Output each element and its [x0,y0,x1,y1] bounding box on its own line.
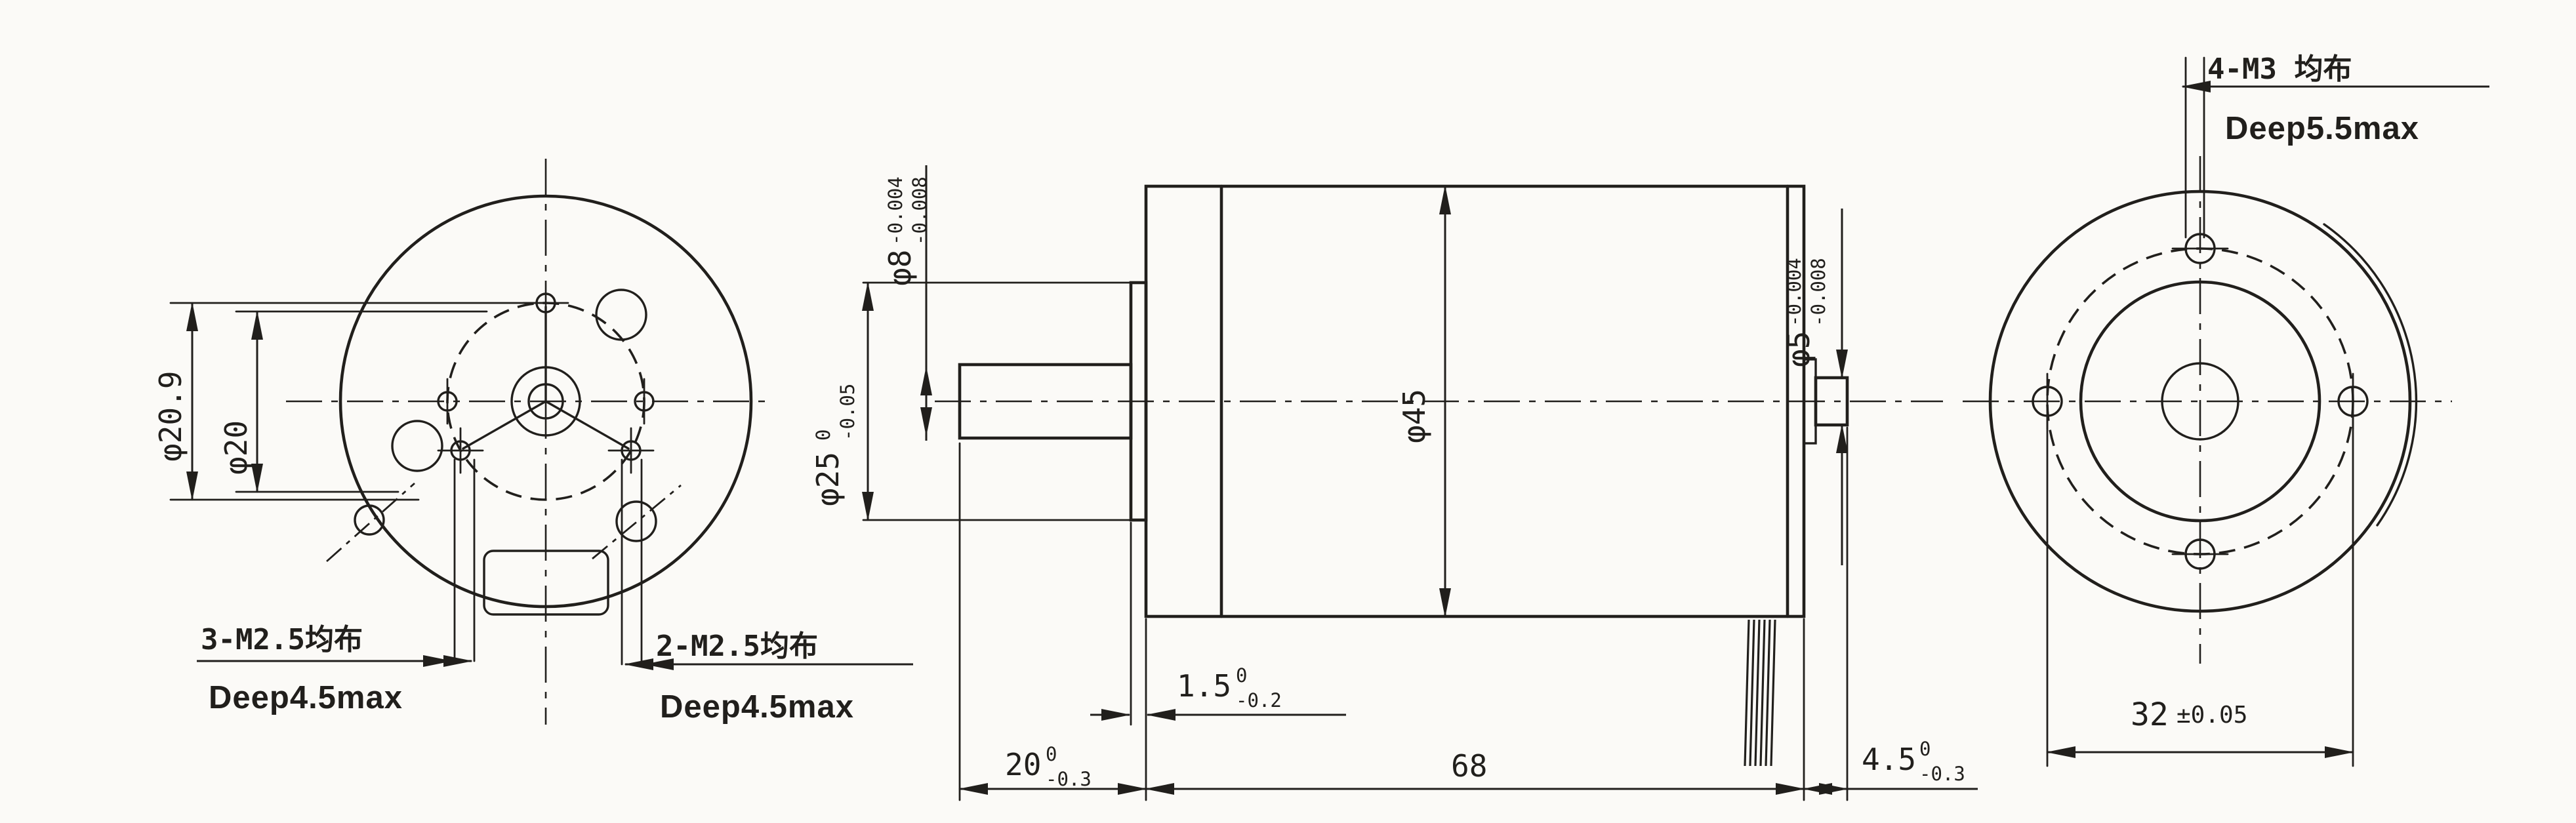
dim-rear-shaft-length: 4.5 0 -0.3 [1804,428,1978,800]
dim-pilot-boss-label: φ25 [810,452,846,506]
dim-front-shaft-tol-lower: -0.008 [909,176,931,245]
side-view: φ8 -0.004 -0.008 φ25 0 -0.05 φ45 [810,165,1978,800]
note-4xm3: 4-M3 均布 Deep5.5max [2182,52,2489,237]
dim-rear-shaft-length-tol-upper: 0 [1919,738,1931,760]
note-2xm25-spec: 2-M2.5均布 [656,630,818,663]
dim-pilot-boss-tol-upper: 0 [812,430,834,441]
note-4xm3-depth: Deep5.5max [2225,111,2419,146]
dim-pilot-boss-tol-lower: -0.05 [836,384,859,441]
hole-leader-lines [455,460,642,664]
dim-boss-lip-label: 1.5 [1177,668,1231,704]
dim-outer-bolt-circle-label: φ20.9 [153,371,188,462]
dim-rear-shaft-tol-upper: -0.004 [1783,258,1805,327]
note-3xm25-depth: Deep4.5max [209,680,403,715]
dim-front-shaft-length-tol-lower: -0.3 [1046,768,1092,790]
right-view: 4-M3 均布 Deep5.5max 32 ±0.05 [1963,52,2489,766]
note-2xm25-depth: Deep4.5max [660,689,854,725]
motor-dimension-drawing: φ20.9 φ20 3-M2.5均布 Deep4.5max 2-M2.5均布 D… [0,0,2576,823]
dim-rear-shaft: φ5 -0.004 -0.008 [1781,209,1842,565]
dim-boss-lip-tol-lower: -0.2 [1236,689,1282,712]
dim-front-shaft-label: φ8 [882,250,918,286]
note-3xm25-spec: 3-M2.5均布 [201,623,363,656]
note-4xm3-spec: 4-M3 均布 [2207,52,2352,86]
drawing-sheet: φ20.9 φ20 3-M2.5均布 Deep4.5max 2-M2.5均布 D… [0,0,2576,823]
housing-holes [392,290,656,541]
dim-rear-shaft-tol-lower: -0.008 [1807,258,1830,327]
dim-rear-shaft-length-tol-lower: -0.3 [1919,763,1965,785]
dim-front-shaft-length-tol-upper: 0 [1046,743,1057,765]
note-3xm25: 3-M2.5均布 Deep4.5max [197,623,472,715]
dim-front-shaft-tol-upper: -0.004 [884,176,907,245]
dim-inner-bolt-circle-label: φ20 [218,420,254,475]
dim-front-shaft-length-label: 20 [1005,747,1041,782]
dim-body-length-label: 68 [1451,748,1487,784]
dim-body-diameter-label: φ45 [1397,389,1432,443]
dim-mounting-span-label: 32 [2131,696,2169,733]
cable-exit [1745,620,1775,766]
dim-boss-lip: 1.5 0 -0.2 [1090,523,1346,725]
dim-rear-shaft-label: φ5 [1781,331,1816,367]
dim-front-shaft: φ8 -0.004 -0.008 [882,165,931,441]
left-view: φ20.9 φ20 3-M2.5均布 Deep4.5max 2-M2.5均布 D… [153,159,913,725]
dim-boss-lip-tol-upper: 0 [1236,664,1247,687]
note-2xm25: 2-M2.5均布 Deep4.5max [625,630,913,725]
dim-mounting-span-tol: ±0.05 [2177,702,2247,729]
dim-front-shaft-length: 20 0 -0.3 [960,443,1146,800]
dim-rear-shaft-length-label: 4.5 [1862,742,1916,777]
flange-edge-arc [2324,224,2416,525]
